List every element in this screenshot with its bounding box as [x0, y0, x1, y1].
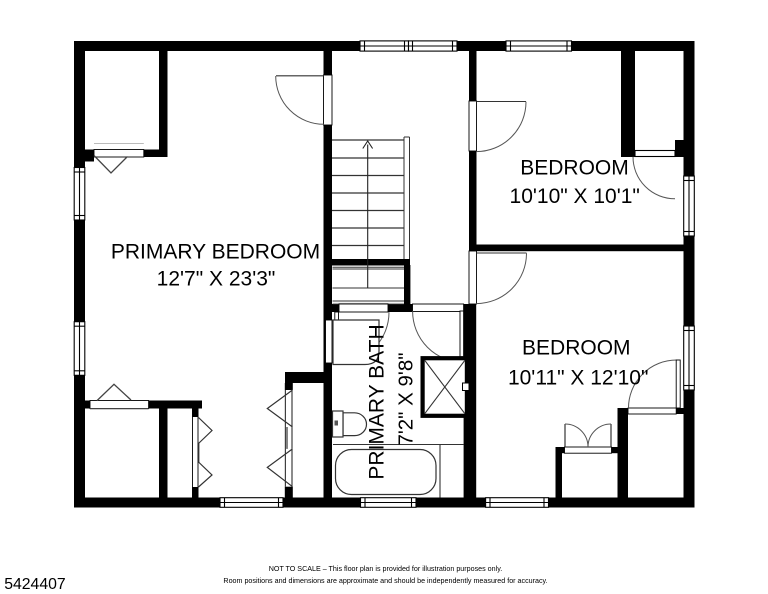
- svg-text:12'7" X 23'3": 12'7" X 23'3": [157, 267, 276, 290]
- svg-text:10'11" X 12'10": 10'11" X 12'10": [508, 367, 648, 390]
- svg-text:PRIMARY BATH: PRIMARY BATH: [366, 324, 389, 479]
- svg-text:NOT TO SCALE – This floor plan: NOT TO SCALE – This floor plan is provid…: [269, 565, 503, 573]
- svg-text:7'2" X 9'8": 7'2" X 9'8": [395, 352, 418, 445]
- svg-text:PRIMARY BEDROOM: PRIMARY BEDROOM: [111, 240, 320, 263]
- svg-text:Room positions and dimensions: Room positions and dimensions are approx…: [223, 577, 547, 585]
- svg-text:10'10" X 10'1": 10'10" X 10'1": [510, 185, 640, 208]
- svg-text:5424407: 5424407: [4, 576, 65, 593]
- svg-text:BEDROOM: BEDROOM: [522, 336, 631, 359]
- svg-text:BEDROOM: BEDROOM: [520, 156, 629, 179]
